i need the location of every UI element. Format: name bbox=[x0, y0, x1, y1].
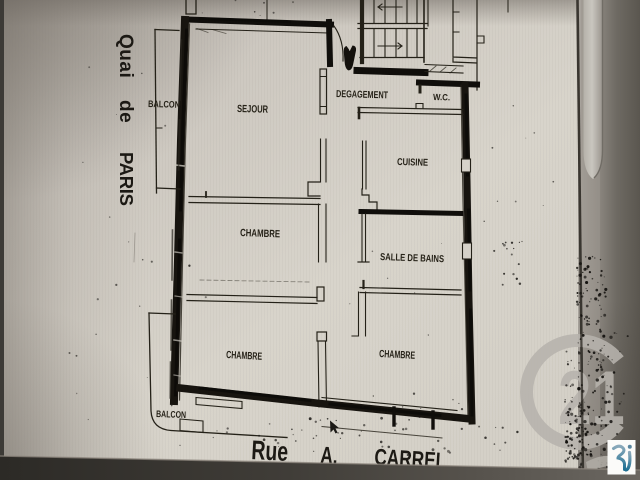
svg-text:CHAMBRE: CHAMBRE bbox=[379, 348, 416, 362]
svg-text:21: 21 bbox=[558, 355, 625, 440]
svg-text:CUISINE: CUISINE bbox=[397, 157, 429, 169]
svg-text:SALLE DE BAINS: SALLE DE BAINS bbox=[380, 252, 445, 265]
svg-text:BALCON: BALCON bbox=[148, 99, 180, 111]
svg-text:SEJOUR: SEJOUR bbox=[237, 103, 269, 116]
svg-text:PARIS: PARIS bbox=[116, 152, 137, 206]
svg-text:BALCON: BALCON bbox=[156, 409, 186, 421]
svg-text:CHAMBRE: CHAMBRE bbox=[226, 349, 263, 363]
svg-text:DEGAGEMENT: DEGAGEMENT bbox=[336, 89, 388, 101]
svg-text:CHAMBRE: CHAMBRE bbox=[240, 227, 280, 240]
svg-text:Quai: Quai bbox=[115, 34, 136, 78]
svg-text:W.C.: W.C. bbox=[433, 92, 450, 102]
svg-text:de: de bbox=[115, 100, 136, 123]
